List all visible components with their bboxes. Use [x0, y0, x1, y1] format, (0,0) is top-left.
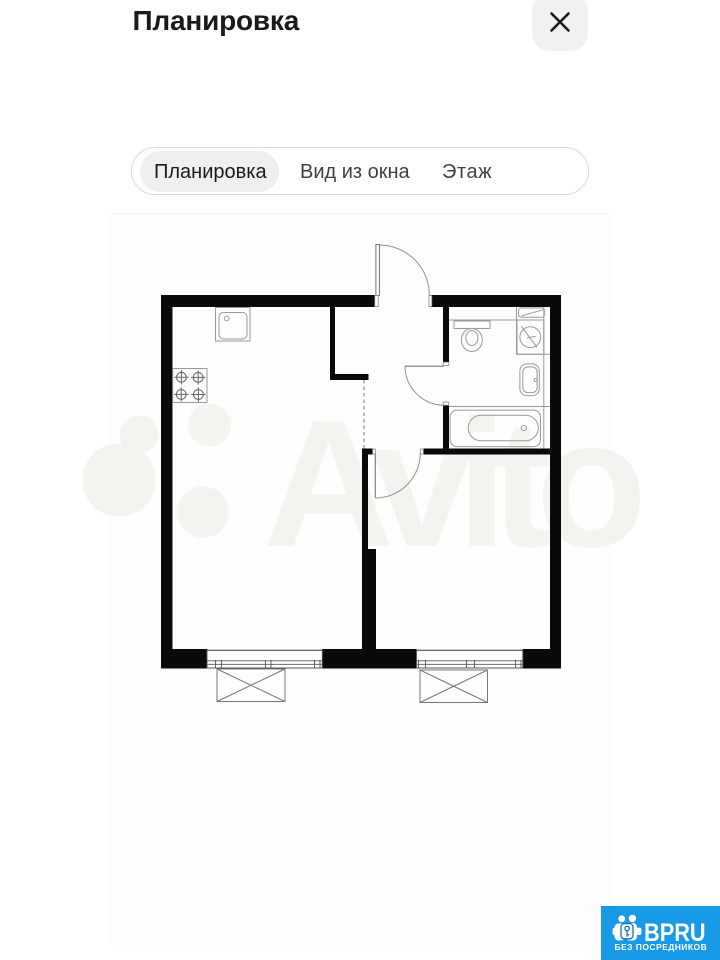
svg-text:Avito: Avito: [263, 381, 647, 585]
